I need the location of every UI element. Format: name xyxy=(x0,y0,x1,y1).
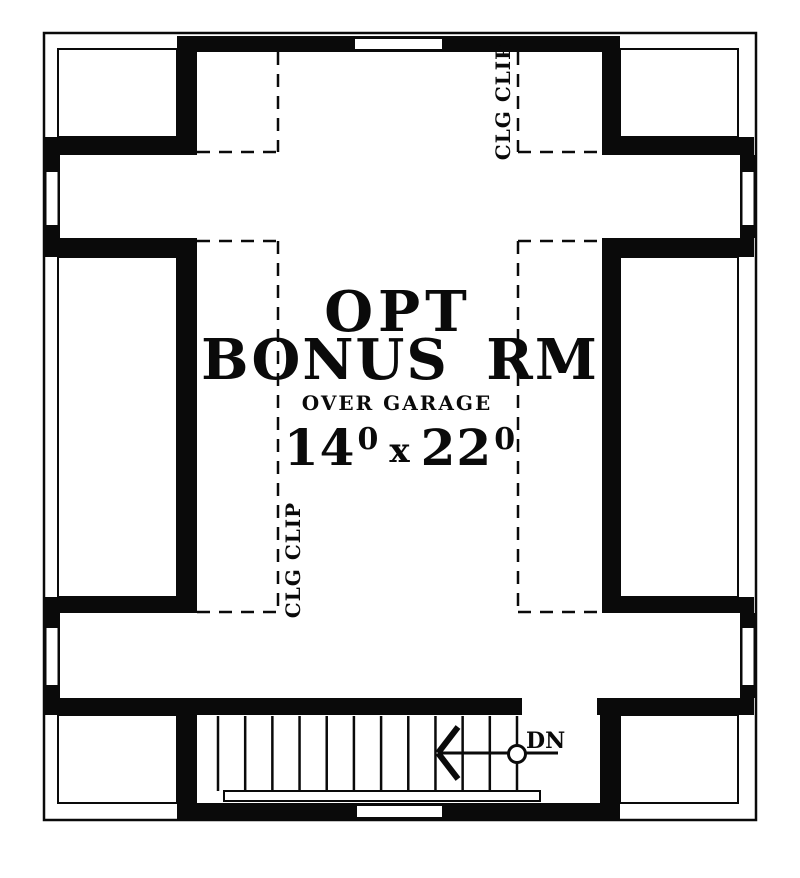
window-right-lower xyxy=(743,628,754,685)
arrow-start-circle xyxy=(509,746,526,763)
room-dimensions: 140x220 xyxy=(284,423,516,473)
window-right-upper xyxy=(743,172,754,225)
room-title-line2: BONUS RM xyxy=(201,332,599,388)
dimension-length-inches: 0 xyxy=(494,422,516,457)
dimension-separator: x xyxy=(389,431,410,471)
room-subtitle: OVER GARAGE xyxy=(302,393,492,413)
wall-stub-right-3 xyxy=(602,597,754,613)
window-top-center xyxy=(355,39,442,49)
wall-room-bottom-left-span xyxy=(44,698,522,715)
stairs-down-label: DN xyxy=(526,730,565,752)
wall-left-lower xyxy=(177,698,197,820)
dimension-width-feet: 14 xyxy=(284,418,356,477)
wall-left-middle xyxy=(177,238,197,613)
wall-stub-left-3 xyxy=(44,597,197,613)
window-bottom-center xyxy=(357,806,442,817)
wall-room-bottom-right-span xyxy=(597,698,754,715)
window-left-upper xyxy=(47,172,58,225)
dimension-length-feet: 22 xyxy=(421,418,493,477)
clg-clip-label-top-right: CLG CLIP xyxy=(493,44,513,160)
floor-plan: OPT BONUS RM OVER GARAGE 140x220 CLG CLI… xyxy=(0,0,800,878)
wall-right-middle xyxy=(602,238,620,613)
wall-stub-left-2 xyxy=(44,238,197,257)
stair-edge-line xyxy=(224,791,540,801)
wall-stub-left-1 xyxy=(44,137,197,155)
clg-clip-label-left: CLG CLIP xyxy=(283,502,303,618)
wall-stub-right-1 xyxy=(602,137,754,155)
wall-stub-right-2 xyxy=(602,238,754,257)
dimension-width-inches: 0 xyxy=(357,422,379,457)
wall-right-lower xyxy=(600,698,620,820)
window-left-lower xyxy=(47,628,58,685)
